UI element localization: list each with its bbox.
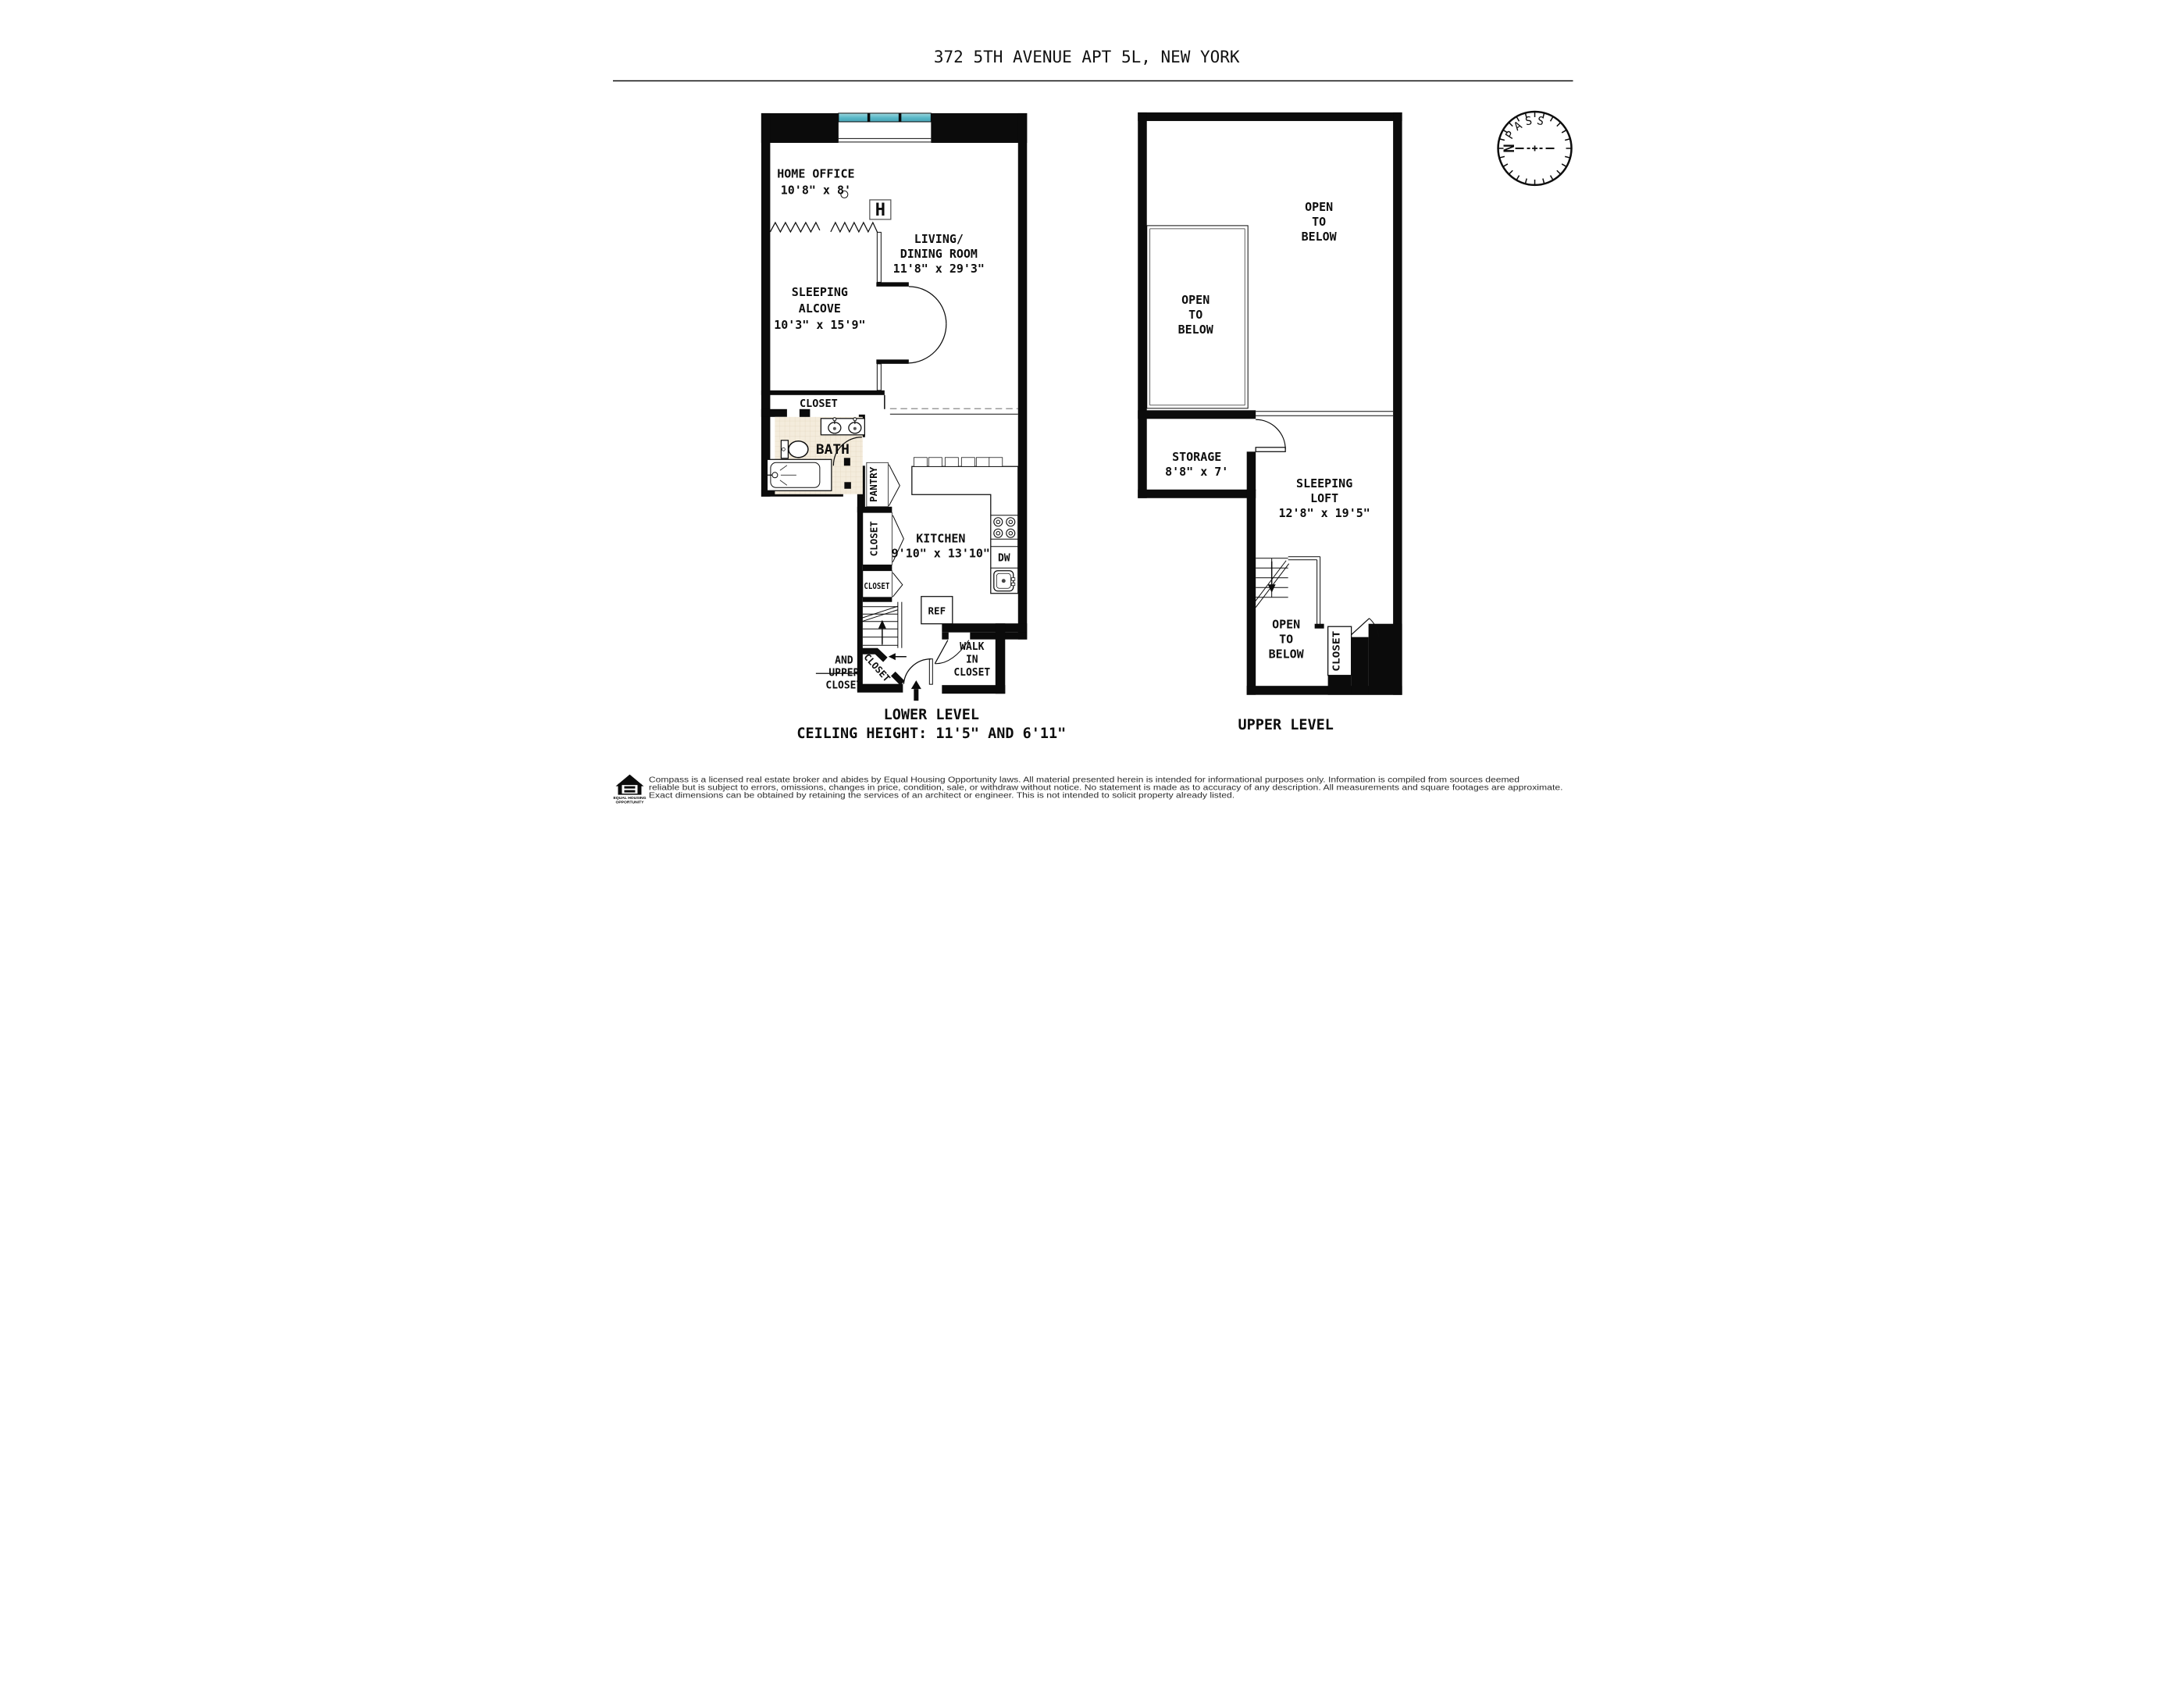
otb-stairwell-3: BELOW bbox=[1268, 647, 1304, 662]
stairs-direction-arrow bbox=[888, 653, 906, 660]
page-title: 372 5TH AVENUE APT 5L, NEW YORK bbox=[933, 48, 1239, 66]
kitchen-label: KITCHEN bbox=[916, 532, 965, 546]
home-office-dims: 10'8" x 8' bbox=[780, 183, 850, 197]
otb-main-1: OPEN bbox=[1305, 200, 1333, 214]
living-dining-dims: 11'8" x 29'3" bbox=[892, 262, 984, 276]
eho-text-2: OPPORTUNITY bbox=[615, 801, 644, 805]
sleeping-alcove-label-1: SLEEPING bbox=[791, 285, 847, 299]
storage-dims: 8'8" x 7' bbox=[1165, 465, 1228, 479]
otb-main-2: TO bbox=[1312, 215, 1326, 229]
refrigerator: REF bbox=[921, 597, 952, 624]
disclaimer-line-2: reliable but is subject to errors, omiss… bbox=[648, 784, 1562, 793]
wic-line-2: IN bbox=[965, 654, 978, 666]
footer: EQUAL HOUSING OPPORTUNITY Compass is a l… bbox=[613, 775, 1562, 805]
otb-stairwell-2: TO bbox=[1279, 633, 1293, 647]
lower-level-caption: LOWER LEVEL bbox=[883, 707, 978, 723]
hall-closet-upper-label: CLOSET bbox=[868, 521, 879, 556]
hall-closet-lower: CLOSET bbox=[862, 571, 902, 597]
vanity-sinks bbox=[821, 418, 864, 435]
window bbox=[838, 113, 930, 142]
header: 372 5TH AVENUE APT 5L, NEW YORK bbox=[612, 48, 1573, 80]
storage-door bbox=[1256, 419, 1285, 451]
sleeping-loft-dims: 12'8" x 19'5" bbox=[1278, 506, 1370, 520]
under-stair-closet: CLOSET bbox=[861, 651, 906, 684]
note-line-1: AND bbox=[835, 655, 853, 667]
loft-closet-label: CLOSET bbox=[1331, 631, 1341, 672]
wic-line-1: WALK bbox=[960, 641, 984, 653]
compass-rose: COMPASS N bbox=[547, 0, 1572, 185]
bath-label: BATH bbox=[815, 442, 849, 458]
disclaimer-line-3: Exact dimensions can be obtained by reta… bbox=[648, 792, 1234, 801]
kitchen-sink bbox=[993, 571, 1014, 591]
wic-line-3: CLOSET bbox=[953, 667, 990, 679]
entry bbox=[903, 659, 932, 701]
otb-stairwell-1: OPEN bbox=[1272, 618, 1300, 632]
upper-walls bbox=[1138, 112, 1402, 695]
otb-left-1: OPEN bbox=[1181, 293, 1210, 307]
toilet bbox=[781, 440, 807, 458]
compass-needle bbox=[1515, 145, 1554, 151]
stairs-up-arrow bbox=[878, 620, 885, 644]
lower-level-ceiling-note: CEILING HEIGHT: 11'5" AND 6'11" bbox=[796, 726, 1066, 742]
sleeping-alcove-label-2: ALCOVE bbox=[798, 301, 840, 316]
dishwasher-label: DW bbox=[997, 553, 1010, 565]
home-office-label: HOME OFFICE bbox=[777, 166, 854, 180]
living-dining-label-2: DINING ROOM bbox=[900, 247, 977, 261]
equal-housing-logo: EQUAL HOUSING OPPORTUNITY bbox=[613, 775, 646, 805]
alcove-closet-label: CLOSET bbox=[800, 398, 838, 410]
note-line-3: CLOSET bbox=[825, 680, 862, 692]
storage-label: STORAGE bbox=[1172, 450, 1221, 464]
living-dining-label-1: LIVING/ bbox=[914, 232, 963, 246]
sleeping-loft-label-1: SLEEPING bbox=[1296, 476, 1352, 490]
hall-closet-lower-label: CLOSET bbox=[864, 581, 889, 591]
lower-level-plan: H bbox=[761, 113, 1065, 742]
refrigerator-label: REF bbox=[928, 605, 946, 617]
otb-main-3: BELOW bbox=[1301, 230, 1337, 244]
walk-in-closet: WALK IN CLOSET bbox=[935, 640, 990, 679]
pantry-bifold-door bbox=[889, 465, 900, 506]
upper-level-caption: UPPER LEVEL bbox=[1238, 717, 1333, 733]
under-stair-closet-label: CLOSET bbox=[861, 651, 892, 684]
radiator-label: H bbox=[875, 201, 885, 220]
upper-stairs bbox=[1252, 557, 1320, 625]
sleeping-loft-label-2: LOFT bbox=[1310, 491, 1338, 505]
bathtub bbox=[764, 459, 831, 490]
otb-left-2: TO bbox=[1188, 308, 1202, 322]
stairwell-railing bbox=[1288, 557, 1320, 625]
otb-left-3: BELOW bbox=[1178, 323, 1213, 337]
floor-plan-sheet: 372 5TH AVENUE APT 5L, NEW YORK bbox=[547, 0, 1638, 843]
entry-arrow bbox=[910, 680, 921, 701]
kitchen: DW REF KITCHEN 9'10" x 13'10" bbox=[891, 458, 1017, 624]
disclaimer-line-1: Compass is a licensed real estate broker… bbox=[648, 776, 1519, 785]
floor-plan-canvas: 372 5TH AVENUE APT 5L, NEW YORK bbox=[547, 0, 1638, 843]
kitchen-dims: 9'10" x 13'10" bbox=[891, 547, 989, 561]
partition-zigzag bbox=[770, 191, 877, 232]
radiator-box: H bbox=[869, 200, 890, 220]
hall-closet-lower-bifold-door bbox=[892, 572, 902, 597]
entry-door-arc bbox=[903, 659, 931, 684]
lower-stairs bbox=[861, 602, 901, 648]
loft-closet-door-leaf bbox=[1351, 619, 1369, 635]
pantry-label: PANTRY bbox=[867, 466, 878, 502]
upper-closet-note: AND UPPER CLOSET bbox=[815, 655, 862, 692]
pantry: PANTRY bbox=[866, 462, 899, 506]
counter-stools bbox=[914, 458, 1002, 466]
sleeping-alcove-dims: 10'3" x 15'9" bbox=[774, 318, 865, 332]
upper-level-plan: CLOSET OPEN TO BELOW OPEN TO BELOW STORA… bbox=[1138, 112, 1402, 733]
bathroom: BATH bbox=[764, 417, 864, 494]
